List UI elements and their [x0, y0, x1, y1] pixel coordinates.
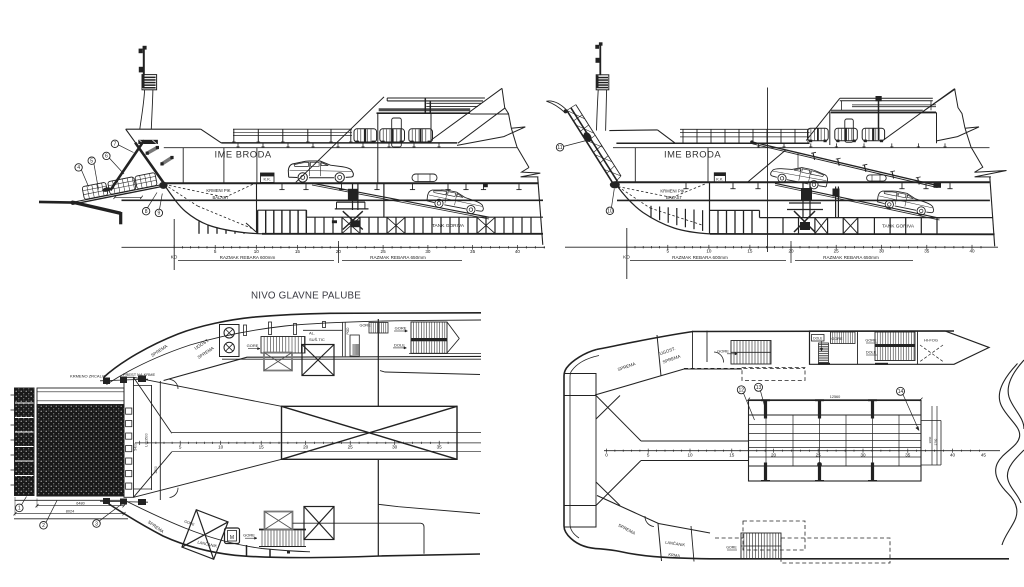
- svg-text:KRMENO ZRCALO: KRMENO ZRCALO: [70, 374, 105, 379]
- svg-text:KO: KO: [171, 255, 178, 260]
- svg-text:10: 10: [687, 452, 693, 457]
- svg-text:40: 40: [515, 249, 521, 254]
- svg-text:25: 25: [834, 249, 840, 254]
- svg-text:35: 35: [905, 452, 911, 457]
- svg-text:5: 5: [647, 452, 650, 457]
- svg-text:25: 25: [381, 249, 387, 254]
- svg-text:M: M: [230, 535, 234, 541]
- svg-text:45: 45: [981, 452, 987, 457]
- svg-text:9: 9: [158, 211, 161, 217]
- svg-text:10: 10: [607, 209, 613, 215]
- svg-text:KRMENI PIK: KRMENI PIK: [660, 188, 684, 193]
- svg-text:10: 10: [218, 445, 224, 450]
- svg-text:3060: 3060: [928, 436, 932, 443]
- svg-text:15: 15: [729, 452, 735, 457]
- svg-text:KO: KO: [623, 255, 630, 260]
- svg-text:8: 8: [145, 209, 148, 215]
- svg-text:10: 10: [706, 249, 712, 254]
- svg-text:15: 15: [747, 249, 753, 254]
- svg-text:RAZMAK REBARA 600mm: RAZMAK REBARA 600mm: [220, 255, 276, 260]
- svg-text:GORE: GORE: [247, 343, 259, 348]
- svg-text:2: 2: [42, 523, 45, 529]
- svg-text:30: 30: [860, 452, 866, 457]
- svg-text:12: 12: [739, 388, 745, 394]
- svg-text:IME BRODA: IME BRODA: [215, 148, 272, 159]
- svg-text:4: 4: [77, 165, 80, 171]
- svg-text:3: 3: [95, 521, 98, 527]
- svg-text:GORE: GORE: [717, 348, 729, 353]
- svg-text:6480: 6480: [76, 501, 84, 505]
- svg-text:PREST NA KRME: PREST NA KRME: [123, 372, 156, 377]
- svg-text:K.K.: K.K.: [716, 177, 723, 181]
- svg-text:12560: 12560: [830, 395, 841, 399]
- svg-text:7: 7: [114, 142, 117, 148]
- svg-text:5: 5: [90, 159, 93, 165]
- svg-text:RAZMAK REBARA 650mm: RAZMAK REBARA 650mm: [370, 255, 426, 260]
- svg-text:K.K.: K.K.: [264, 177, 272, 182]
- svg-text:5: 5: [214, 249, 217, 254]
- svg-text:DOLE: DOLE: [394, 342, 405, 347]
- svg-text:GORE: GORE: [243, 533, 255, 538]
- svg-text:SUŠ.TIC: SUŠ.TIC: [309, 337, 325, 342]
- svg-text:1: 1: [18, 506, 21, 512]
- svg-text:20: 20: [771, 452, 777, 457]
- svg-text:DOLE: DOLE: [813, 337, 823, 341]
- svg-text:BALAST: BALAST: [666, 195, 683, 200]
- svg-text:35: 35: [470, 249, 476, 254]
- svg-text:15: 15: [295, 249, 301, 254]
- svg-text:GORE: GORE: [726, 546, 737, 550]
- svg-text:35: 35: [924, 249, 930, 254]
- svg-text:25: 25: [348, 445, 354, 450]
- svg-text:14: 14: [898, 389, 904, 395]
- svg-text:5: 5: [179, 445, 182, 450]
- svg-text:0: 0: [605, 452, 608, 457]
- svg-text:40: 40: [950, 452, 956, 457]
- svg-text:15: 15: [259, 445, 265, 450]
- svg-text:11: 11: [557, 145, 562, 151]
- svg-text:RAZMAK REBARA 600mm: RAZMAK REBARA 600mm: [672, 255, 728, 260]
- svg-text:BALAST: BALAST: [212, 195, 229, 200]
- svg-text:10: 10: [254, 249, 260, 254]
- svg-text:8024: 8024: [66, 509, 74, 513]
- svg-text:L=13500: L=13500: [145, 433, 149, 446]
- svg-text:30: 30: [392, 445, 398, 450]
- svg-text:KRMENI PIK: KRMENI PIK: [206, 188, 230, 193]
- svg-text:GORE: GORE: [360, 324, 372, 328]
- svg-text:20: 20: [303, 445, 309, 450]
- svg-text:AL.: AL.: [309, 331, 315, 336]
- svg-text:6: 6: [105, 154, 108, 160]
- svg-text:30: 30: [425, 249, 431, 254]
- svg-text:40: 40: [969, 249, 975, 254]
- svg-text:HI-FOG: HI-FOG: [924, 338, 938, 343]
- svg-text:TANK GORIVA: TANK GORIVA: [882, 223, 915, 229]
- svg-text:POD: POD: [346, 327, 350, 335]
- svg-text:NIVO GLAVNE PALUBE: NIVO GLAVNE PALUBE: [251, 290, 361, 301]
- svg-text:5400: 5400: [134, 443, 138, 451]
- svg-text:TANK GORIVA: TANK GORIVA: [432, 223, 465, 229]
- svg-text:25: 25: [816, 452, 822, 457]
- svg-text:RAZMAK REBARA 650mm: RAZMAK REBARA 650mm: [823, 255, 879, 260]
- svg-text:13: 13: [756, 385, 762, 391]
- svg-text:30: 30: [879, 249, 885, 254]
- svg-text:5: 5: [667, 249, 670, 254]
- svg-text:IME BRODA: IME BRODA: [664, 148, 721, 159]
- svg-text:35: 35: [437, 445, 443, 450]
- svg-text:3760: 3760: [934, 438, 938, 445]
